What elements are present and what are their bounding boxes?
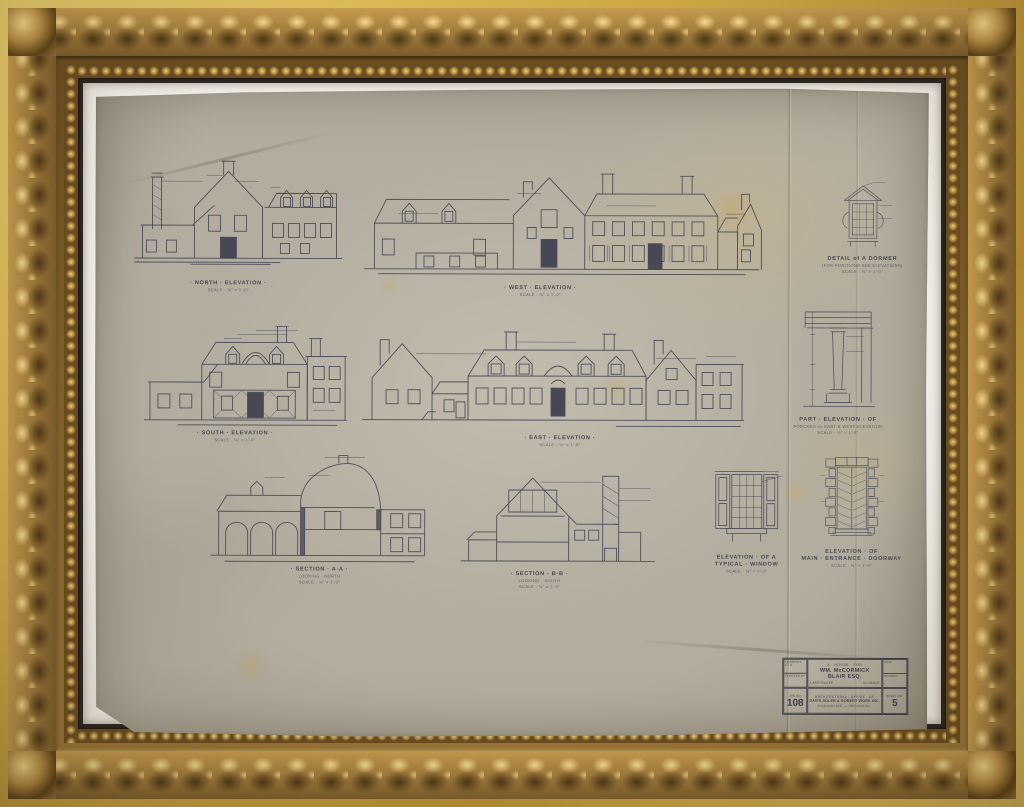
dormer-detail-drawing	[820, 181, 905, 253]
south-elevation-label: · SOUTH · ELEVATION · SCALE · ⅛″ = 1′-0″	[165, 430, 305, 443]
frame-carving-right	[968, 8, 1016, 799]
porch-part-elevation-drawing	[793, 297, 881, 415]
section-bb-label: · SECTION · B-B · LOOKING · SOUTH SCALE …	[475, 571, 605, 589]
drawing-scale: SCALE · ⅛″ = 1′-0″	[163, 287, 293, 293]
title-block: DRAWN BY F.T.A. CHECKED BY · A · HOUSE ·…	[782, 658, 908, 715]
drawn-by-value: F.T.A.	[785, 664, 805, 667]
west-elevation-label: · WEST · ELEVATION · SCALE · ⅛″ = 1′-0″	[475, 285, 605, 298]
dormer-detail-label: DETAIL of A DORMER (FOR POSITIONS SEE EL…	[792, 256, 932, 274]
drawing-scale: SCALE · ⅛″ = 1′-0″	[475, 583, 605, 589]
section-bb-drawing	[455, 460, 660, 573]
bead-row	[64, 64, 78, 743]
title-block-job-cell: JOB NO. 108	[783, 688, 807, 714]
section-aa-label: · SECTION · A-A · LOOKING · NORTH SCALE …	[255, 566, 385, 584]
frame-corner-rosette	[968, 8, 1016, 56]
main-entrance-doorway-drawing	[806, 451, 898, 547]
stain	[229, 647, 275, 683]
office-line3: MICHIGAN AVE. — CHICAGO ILL.	[818, 703, 871, 707]
drawing-scale: SCALE · ⅛″ = 1′-0″	[255, 579, 385, 585]
revised-label: REVISED	[884, 674, 897, 678]
title-block-office-cell: · ARCHITECTURAL · OFFICE · OF · DAVID AD…	[807, 688, 882, 714]
south-elevation-drawing	[138, 300, 352, 431]
drawing-scale: SCALE · ¾″ = 1′-0″	[792, 268, 932, 274]
client-name: WM. McCORMICK BLAIR ESQ.	[810, 667, 879, 679]
frame-carving-top	[8, 8, 1016, 56]
date-label: DATE	[884, 660, 892, 664]
typical-window-drawing	[703, 462, 791, 554]
frame-corner-rosette	[8, 8, 56, 56]
east-elevation-drawing	[356, 306, 748, 435]
frame-carving-bottom	[8, 751, 1016, 799]
frame-corner-rosette	[8, 751, 56, 799]
job-number: 108	[787, 697, 804, 708]
section-aa-drawing	[205, 449, 430, 568]
porch-part-elevation-label: PART · ELEVATION · OF PORCHES on EAST & …	[763, 417, 913, 435]
drawing-scale: SCALE · ⅛″ = 1′-0″	[475, 292, 605, 298]
bead-row	[64, 64, 960, 78]
city: LAKE BLUFF	[810, 680, 833, 684]
drawing-scale: SCALE · ¾″ = 1′-0″	[685, 568, 809, 574]
drawing-scale: SCALE · ⅛″ = 1′-0″	[495, 442, 625, 448]
west-elevation-drawing	[358, 154, 765, 284]
drawing-scale: SCALE · ¾″ = 1′-0″	[763, 429, 913, 435]
drawing-scale: SCALE · ¾″ = 1′-0″	[785, 563, 919, 569]
house-for-line: · A · HOUSE · FOR ·	[824, 662, 865, 666]
framed-blueprint-photo: · NORTH · ELEVATION · SCALE · ⅛″ = 1′-0″	[0, 0, 1024, 807]
title-block-drawn-by-cell: DRAWN BY F.T.A. CHECKED BY	[783, 659, 807, 688]
title-block-sheet-cell: SHEET NO. 5	[882, 688, 907, 714]
bead-row	[946, 64, 960, 743]
main-entrance-doorway-label: ELEVATION · OF MAIN · ENTRANCE · DOORWAY…	[785, 549, 919, 569]
drawing-scale: SCALE · ⅛″ = 1′-0″	[165, 437, 305, 443]
frame-corner-rosette	[968, 751, 1016, 799]
blueprint-sheet: · NORTH · ELEVATION · SCALE · ⅛″ = 1′-0″	[94, 87, 929, 738]
state: ILLINOIS	[863, 680, 879, 684]
sheet-number: 5	[892, 697, 898, 708]
title-block-project-cell: · A · HOUSE · FOR · WM. McCORMICK BLAIR …	[807, 659, 882, 688]
east-elevation-label: · EAST · ELEVATION · SCALE · ⅛″ = 1′-0″	[495, 435, 625, 448]
paper-crease	[786, 89, 792, 738]
north-elevation-drawing	[130, 145, 345, 279]
title-block-date-cell: DATE REVISED	[882, 659, 907, 688]
checked-by-label: CHECKED BY	[785, 674, 805, 678]
frame-carving-left	[8, 8, 56, 799]
north-elevation-label: · NORTH · ELEVATION · SCALE · ⅛″ = 1′-0″	[163, 280, 293, 293]
